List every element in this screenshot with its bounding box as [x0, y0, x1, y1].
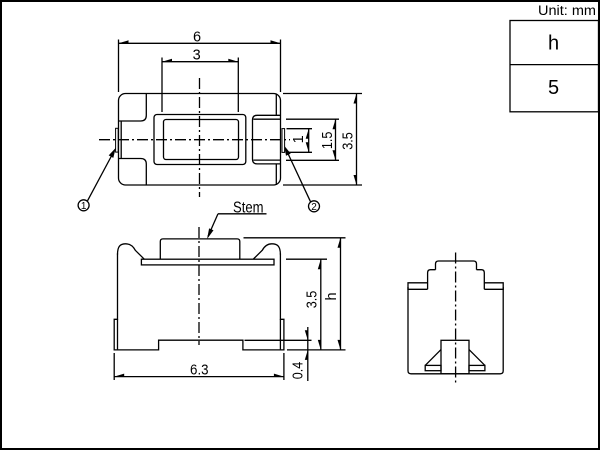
- svg-text:6: 6: [193, 30, 201, 46]
- svg-text:0.4: 0.4: [290, 362, 306, 380]
- svg-text:h: h: [548, 33, 559, 55]
- svg-text:Unit: mm: Unit: mm: [538, 3, 596, 18]
- svg-text:2: 2: [311, 202, 317, 213]
- svg-text:3: 3: [193, 47, 201, 63]
- svg-text:h: h: [324, 292, 340, 300]
- svg-text:3.5: 3.5: [340, 132, 356, 150]
- svg-text:1: 1: [291, 135, 307, 143]
- svg-text:6.3: 6.3: [190, 363, 209, 379]
- svg-text:1: 1: [81, 201, 87, 212]
- svg-text:3.5: 3.5: [305, 291, 321, 309]
- svg-text:5: 5: [548, 77, 559, 99]
- svg-text:1.5: 1.5: [320, 132, 336, 150]
